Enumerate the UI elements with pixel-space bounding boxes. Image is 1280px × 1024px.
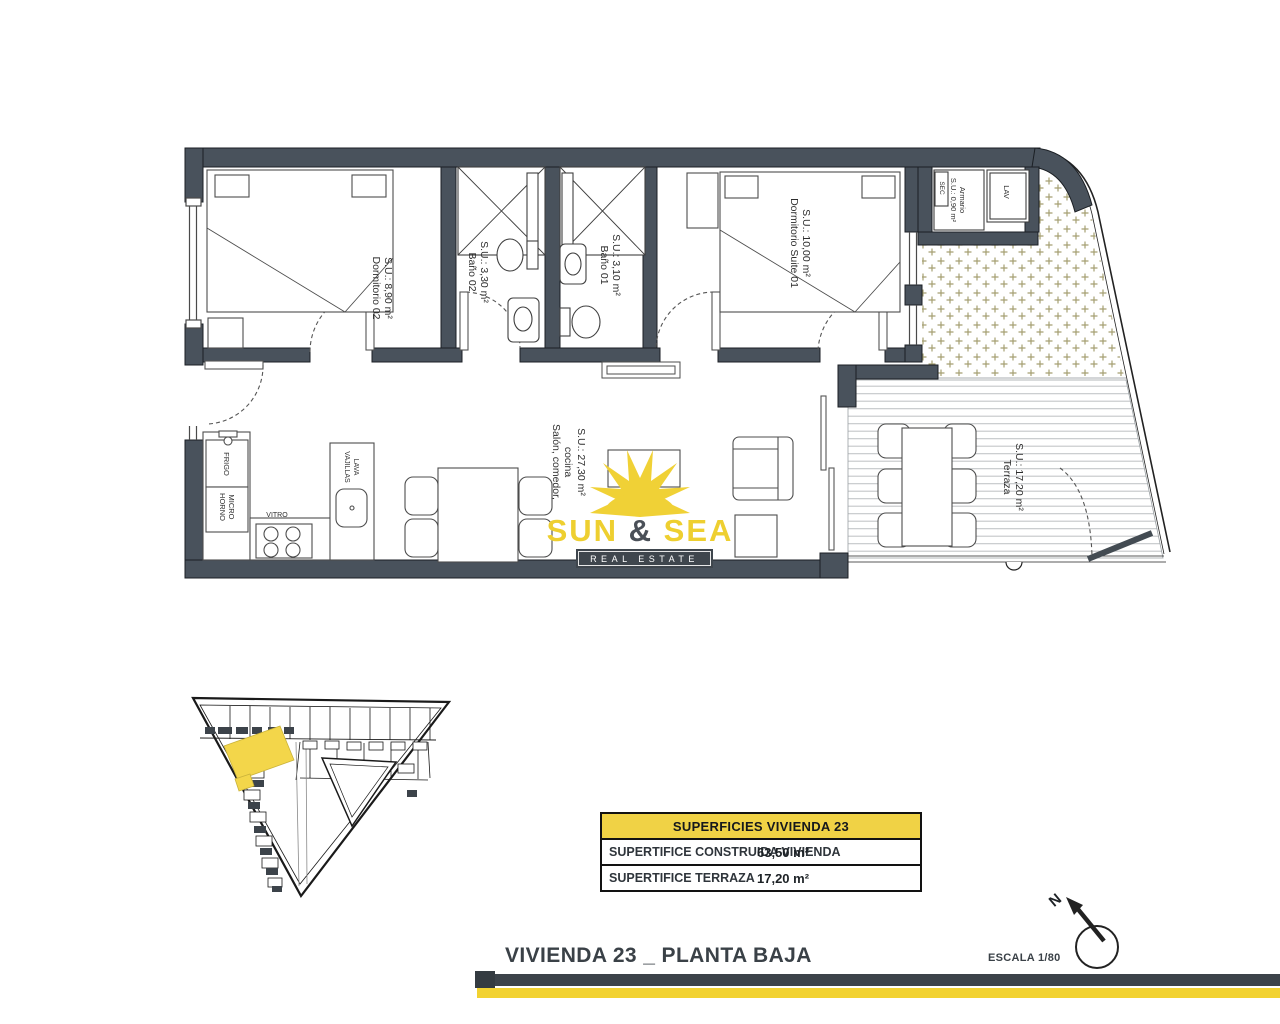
north-arrow-icon <box>1066 897 1118 968</box>
footer-yellow-bar <box>477 988 1280 998</box>
room-label-dormitorio-02: S.U.: 8,90 m² Dormitorio 02 <box>369 233 395 343</box>
room-name: Baño 02 <box>466 252 479 291</box>
brand-tagline-bar: REAL ESTATE <box>576 549 713 568</box>
summary-row-value: 63,50 m² <box>757 845 920 860</box>
room-name: Salón, comedor, <box>549 424 562 500</box>
room-area: S.U.: 8,90 m² <box>382 257 395 319</box>
page-title: VIVIENDA 23 _ PLANTA BAJA <box>505 944 812 968</box>
summary-row-value: 17,20 m² <box>757 871 920 886</box>
summary-table-row: SUPERTIFICE CONSTRUIDA VIVIENDA 63,50 m² <box>602 840 920 864</box>
room-name: Baño 01 <box>598 245 611 284</box>
footer-dark-bar <box>475 974 1280 986</box>
room-name: Dormitorio 02 <box>370 256 383 319</box>
room-area: S.U.: 27,30 m² <box>574 428 587 496</box>
label-hob: VITRO <box>262 512 292 519</box>
room-label-suite-01: S.U.: 10,00 m² Dormitorio Suite 01 <box>787 183 813 303</box>
terrace-table-set <box>878 424 976 547</box>
footer-dark-bar-cap <box>475 971 495 988</box>
room-area: S.U.: 17,20 m² <box>1013 443 1026 511</box>
room-area: S.U.: 3,30 m² <box>478 241 491 303</box>
brand-tagline: REAL ESTATE <box>578 551 711 566</box>
brand-sea: SEA <box>664 513 734 548</box>
room-label-terraza: S.U.: 17,20 m² Terraza <box>1000 422 1026 532</box>
brand-logo: SUN & SEA <box>490 513 790 549</box>
summary-table-row: SUPERTIFICE TERRAZA 17,20 m² <box>602 864 920 890</box>
room-name: Terraza <box>1001 459 1014 494</box>
room-label-bano-01: S.U.: 3,10 m² Baño 01 <box>597 210 623 320</box>
room-name: cocina <box>562 447 575 477</box>
label-dishwasher: LAVA VAJILLAS <box>342 443 360 491</box>
label-dryer: SEC <box>936 168 946 208</box>
brand-sun: SUN <box>547 513 618 548</box>
room-name: Dormitorio Suite 01 <box>788 198 801 288</box>
bed-dormitorio-02 <box>207 170 393 348</box>
site-plan <box>193 698 449 896</box>
floorplan-page: S.U.: 8,90 m² Dormitorio 02 S.U.: 3,30 m… <box>0 0 1280 1024</box>
label-oven-micro: MICRO HORNO <box>218 485 236 529</box>
room-name: Armario <box>958 187 967 213</box>
room-label-salon: S.U.: 27,30 m² cocina Salón, comedor, <box>549 407 587 517</box>
label-washer: LAV <box>1002 172 1012 212</box>
summary-row-label: SUPERTIFICE TERRAZA <box>602 871 757 885</box>
room-area: S.U.: 3,10 m² <box>610 234 623 296</box>
summary-table-header: SUPERFICIES VIVIENDA 23 <box>602 814 920 840</box>
area-summary-table: SUPERFICIES VIVIENDA 23 SUPERTIFICE CONS… <box>600 812 922 892</box>
room-label-armario: Armario S.U.: 0,90 m² <box>949 155 967 245</box>
room-area: S.U.: 0,90 m² <box>949 178 958 222</box>
summary-row-label: SUPERTIFICE CONSTRUIDA VIVIENDA <box>602 845 757 859</box>
brand-ampersand: & <box>629 513 653 548</box>
room-area: S.U.: 10,00 m² <box>800 209 813 277</box>
label-fridge: FRIGO <box>222 444 232 484</box>
hall-console <box>602 362 680 378</box>
room-label-bano-02: S.U.: 3,30 m² Baño 02 <box>465 217 491 327</box>
scale-label: ESCALA 1/80 <box>988 952 1061 964</box>
